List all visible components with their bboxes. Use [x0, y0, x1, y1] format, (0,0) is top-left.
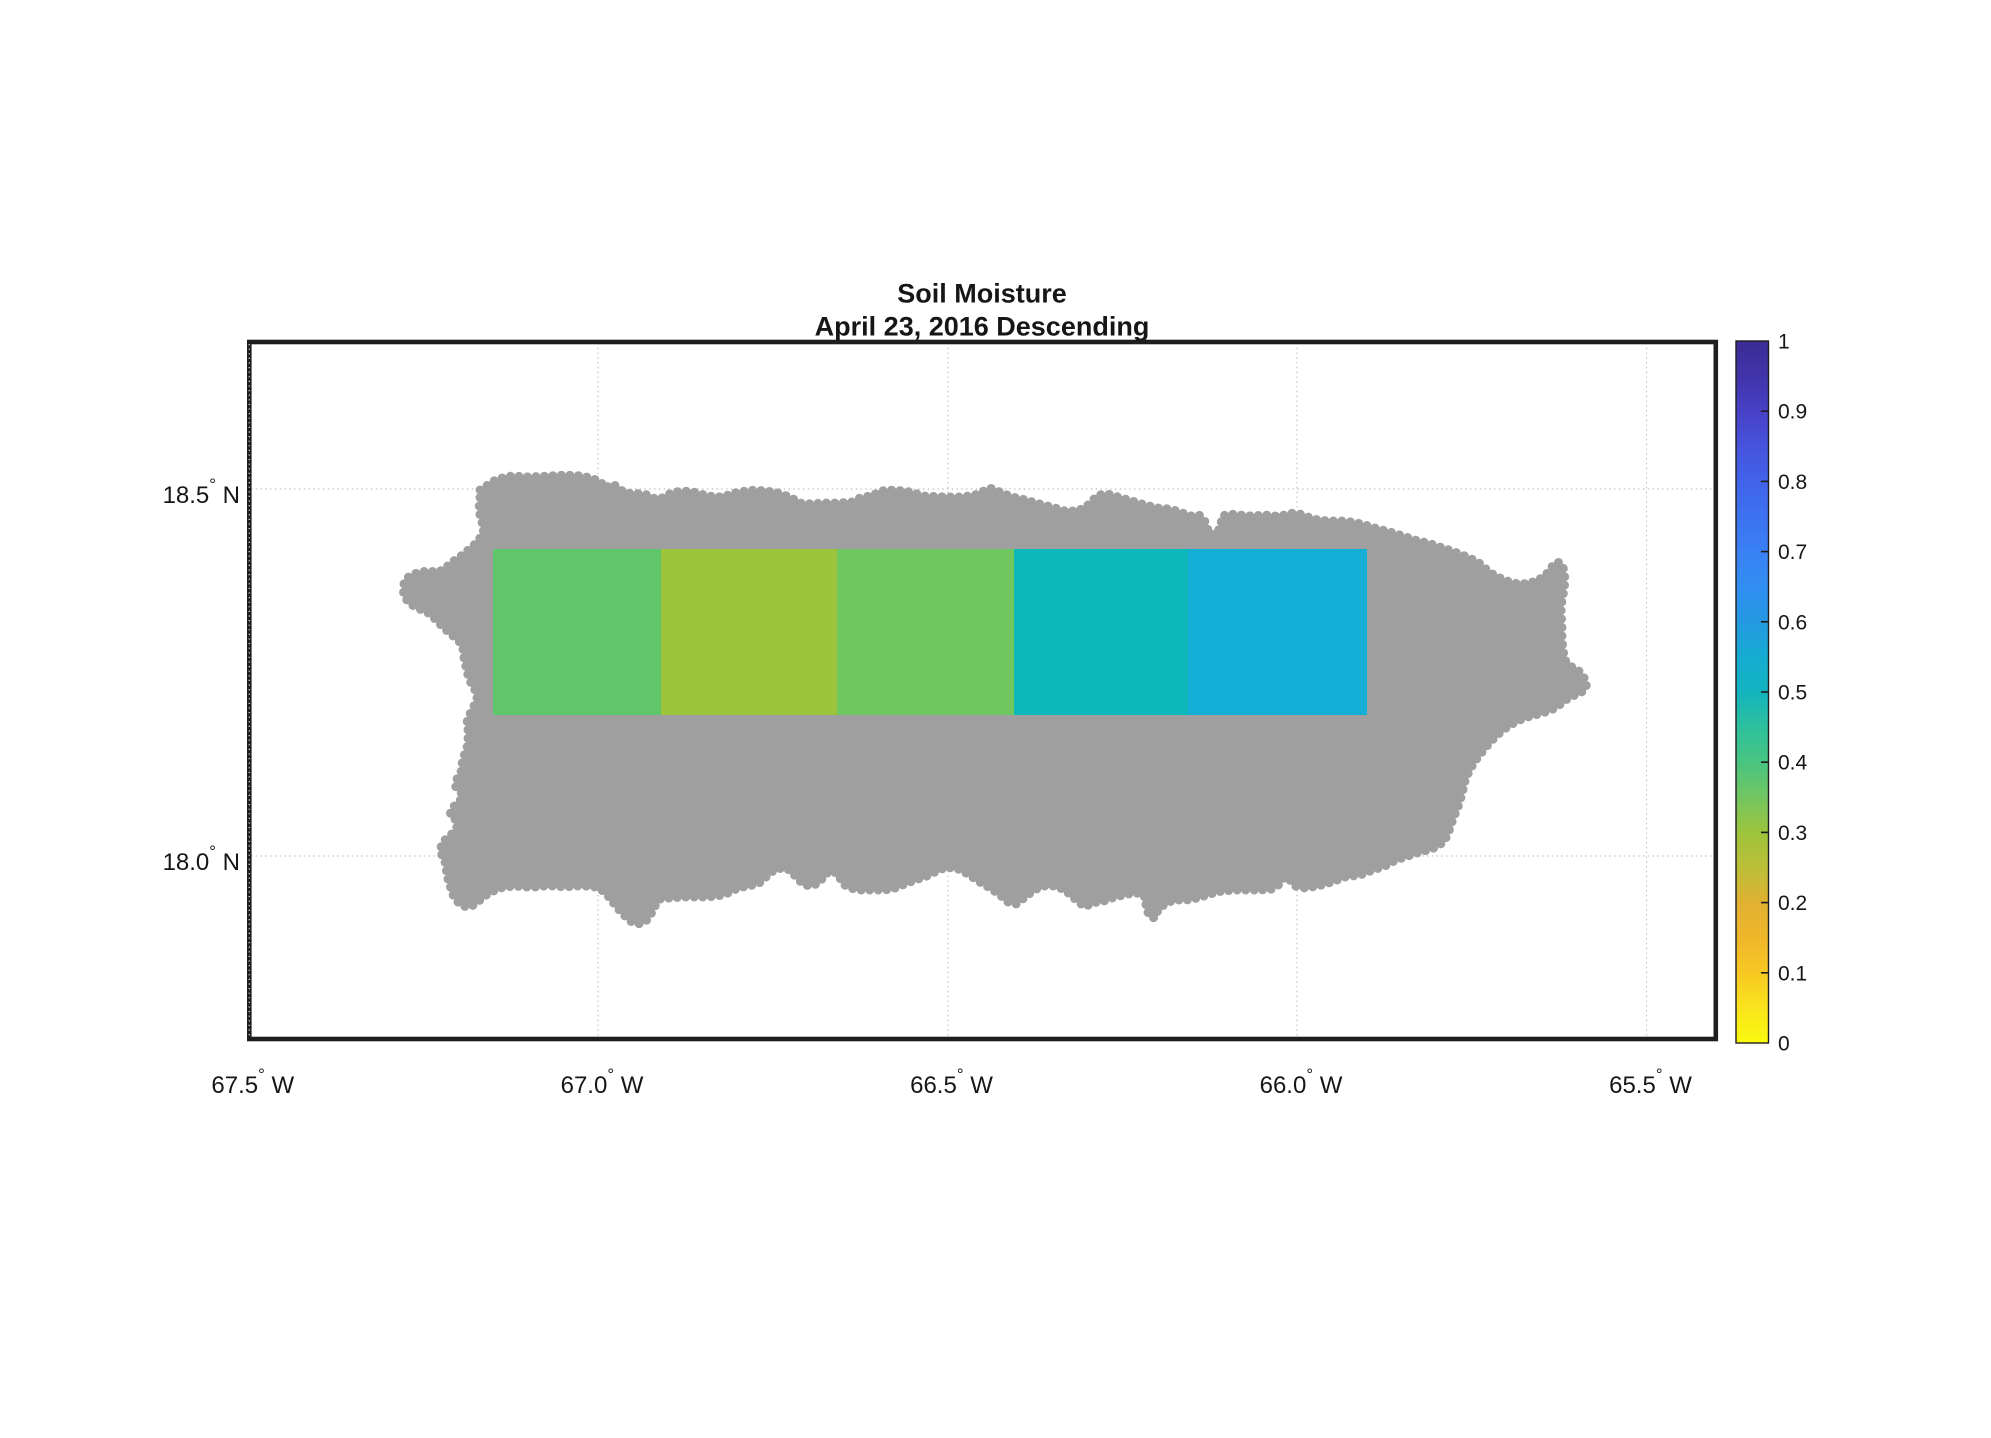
svg-text:0.6: 0.6 — [1778, 611, 1807, 634]
svg-text:0.8: 0.8 — [1778, 471, 1807, 494]
svg-text:0.1: 0.1 — [1778, 962, 1807, 985]
svg-text:0.9: 0.9 — [1778, 401, 1807, 424]
svg-text:1: 1 — [1778, 331, 1790, 354]
svg-text:0.7: 0.7 — [1778, 541, 1807, 564]
svg-text:April 23, 2016 Descending: April 23, 2016 Descending — [815, 312, 1150, 342]
svg-text:0.4: 0.4 — [1778, 752, 1808, 775]
svg-text:0.5: 0.5 — [1778, 682, 1807, 705]
svg-text:0: 0 — [1778, 1033, 1790, 1056]
svg-text:0.3: 0.3 — [1778, 822, 1807, 845]
svg-text:0.2: 0.2 — [1778, 892, 1807, 915]
svg-text:Soil Moisture: Soil Moisture — [897, 279, 1067, 309]
